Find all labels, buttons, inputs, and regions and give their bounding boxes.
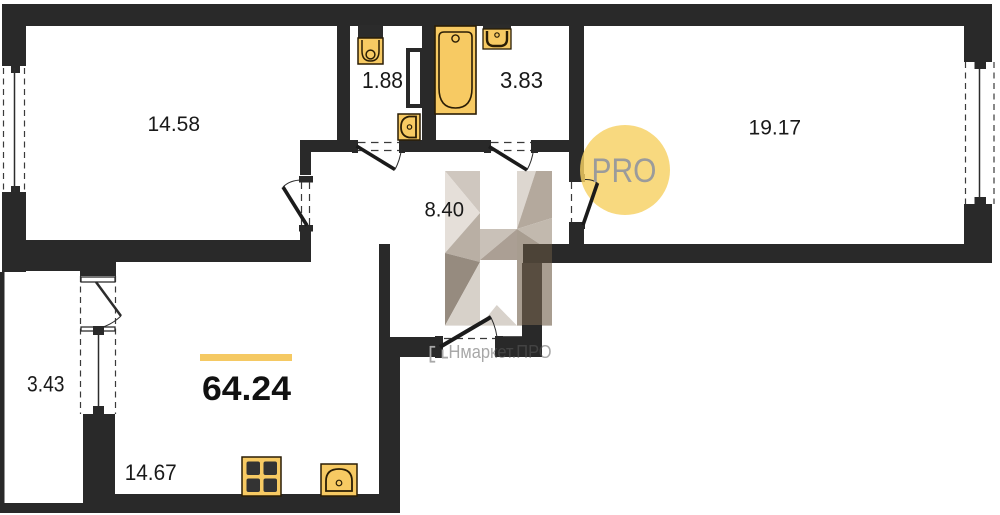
svg-text:PRO: PRO xyxy=(592,152,657,190)
svg-text:14.58: 14.58 xyxy=(148,112,201,136)
svg-text:3.43: 3.43 xyxy=(27,372,65,397)
svg-text:3.83: 3.83 xyxy=(500,67,543,93)
svg-text:19.17: 19.17 xyxy=(749,116,802,140)
svg-text:64.24: 64.24 xyxy=(202,370,291,408)
svg-text:1.88: 1.88 xyxy=(362,67,403,93)
svg-text:8.40: 8.40 xyxy=(425,198,465,222)
svg-text:14.67: 14.67 xyxy=(125,460,177,485)
